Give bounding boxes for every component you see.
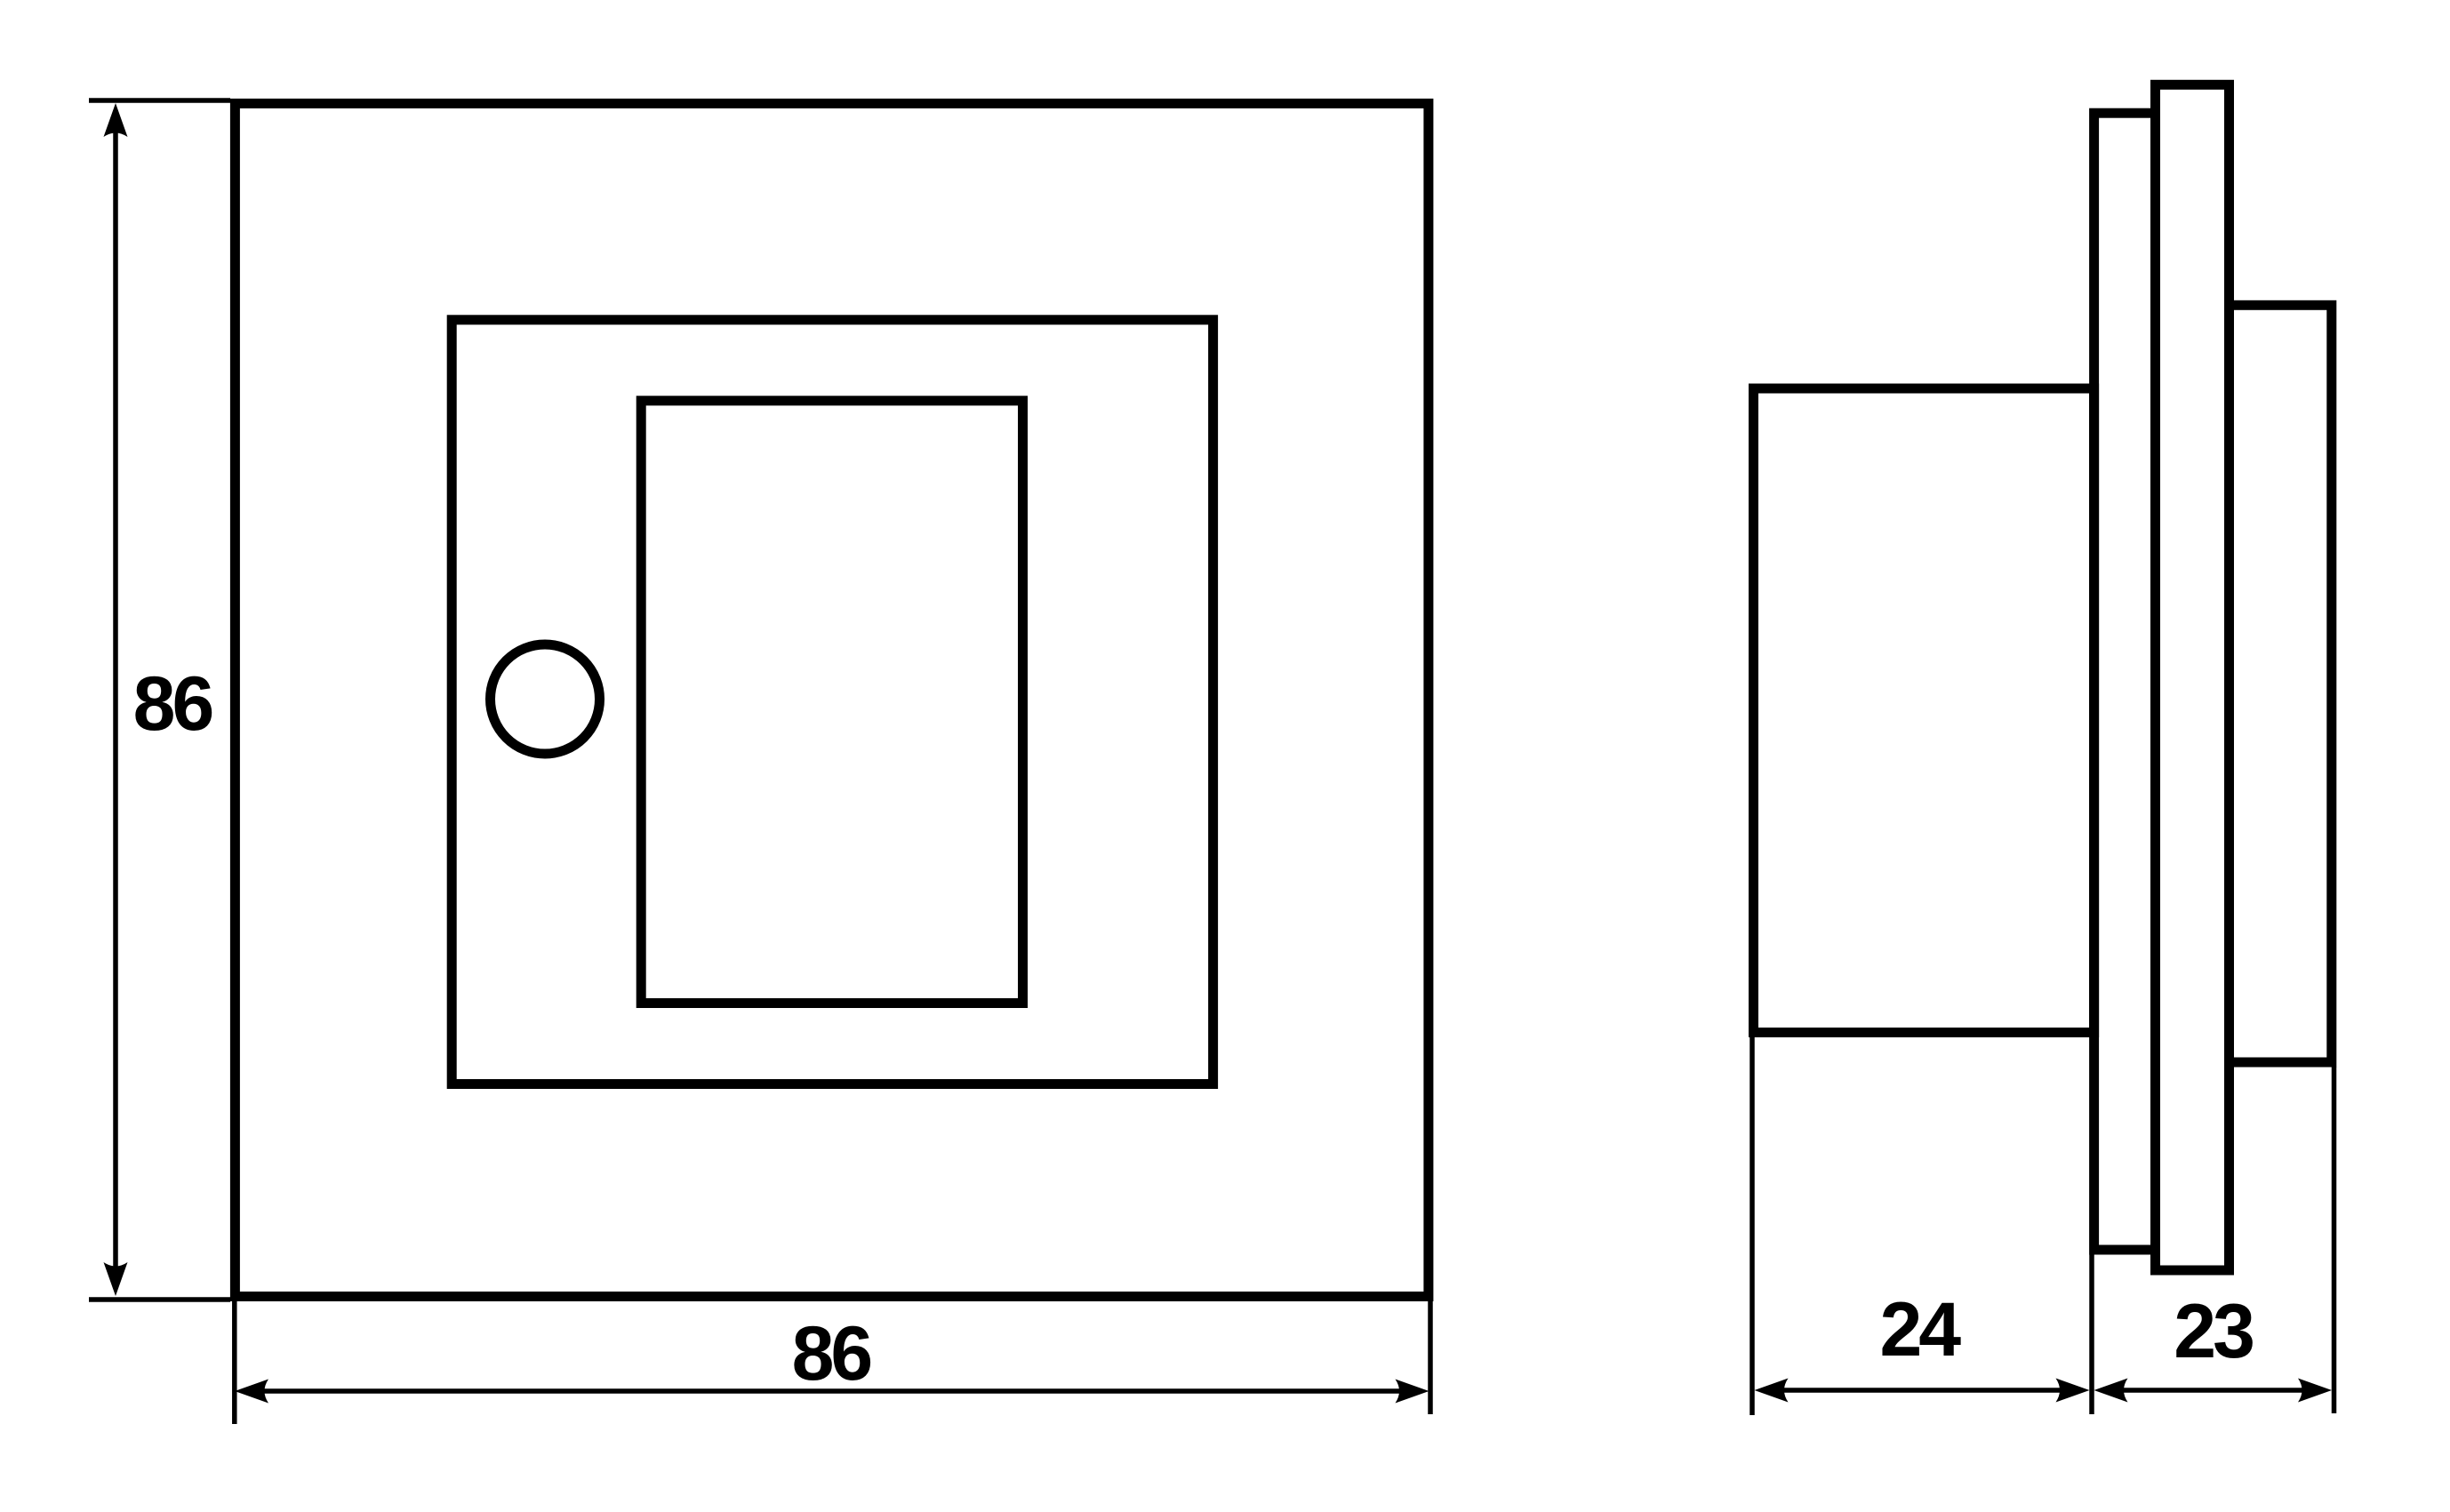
svg-text:86: 86	[133, 661, 212, 747]
svg-text:86: 86	[792, 1311, 871, 1396]
svg-text:23: 23	[2174, 1289, 2253, 1374]
svg-text:24: 24	[1879, 1287, 1961, 1372]
